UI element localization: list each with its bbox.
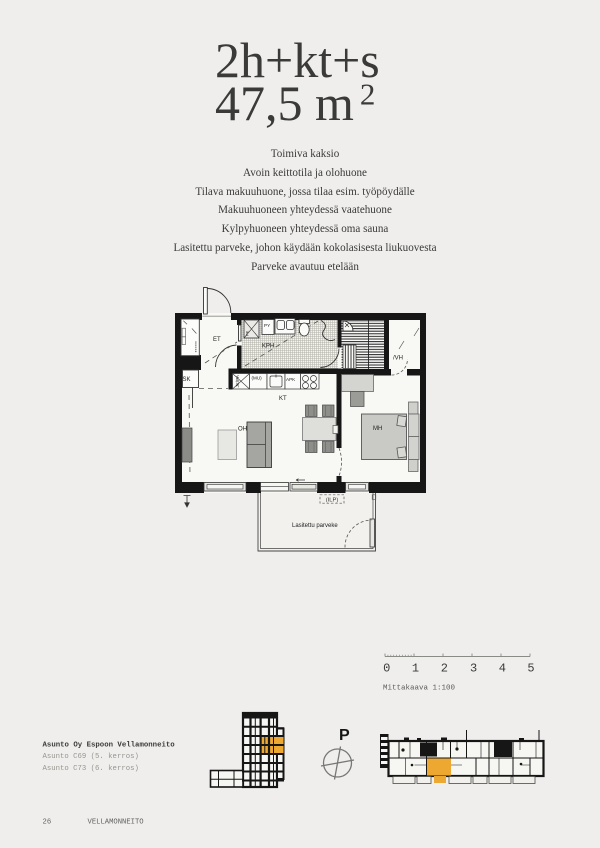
svg-text:SK: SK [183, 377, 191, 383]
svg-text:0: 0 [383, 662, 390, 676]
svg-text:4: 4 [499, 662, 506, 676]
svg-text:3: 3 [470, 662, 477, 676]
svg-text:PK: PK [245, 330, 250, 336]
svg-text:(MU): (MU) [252, 376, 263, 381]
svg-text:OH: OH [238, 427, 247, 433]
svg-text:ET: ET [213, 337, 221, 343]
svg-text:APK: APK [286, 377, 296, 382]
svg-text:26: 26 [43, 819, 52, 827]
svg-text:5: 5 [527, 662, 534, 676]
svg-text:KT: KT [279, 396, 287, 402]
svg-text:Asunto C73 (6. kerros): Asunto C73 (6. kerros) [43, 765, 139, 773]
svg-text:2: 2 [441, 662, 448, 676]
svg-text:Asunto Oy Espoon Vellamonneito: Asunto Oy Espoon Vellamonneito [43, 742, 176, 750]
svg-text:JK/PA: JK/PA [235, 374, 240, 387]
svg-text:PY: PY [264, 323, 270, 328]
svg-text:(ILP): (ILP) [326, 498, 339, 504]
svg-text:KPH: KPH [262, 344, 274, 350]
svg-text:VELLAMONNEITO: VELLAMONNEITO [88, 819, 144, 827]
svg-text:P: P [339, 727, 350, 744]
svg-text:/VH: /VH [393, 356, 403, 362]
svg-text:Mittakaava 1:100: Mittakaava 1:100 [383, 685, 456, 693]
svg-text:MH: MH [373, 426, 382, 432]
svg-text:Lasitettu parveke: Lasitettu parveke [292, 523, 338, 529]
svg-text:1: 1 [412, 662, 419, 676]
svg-text:Asunto C69 (5. kerros): Asunto C69 (5. kerros) [43, 753, 139, 761]
